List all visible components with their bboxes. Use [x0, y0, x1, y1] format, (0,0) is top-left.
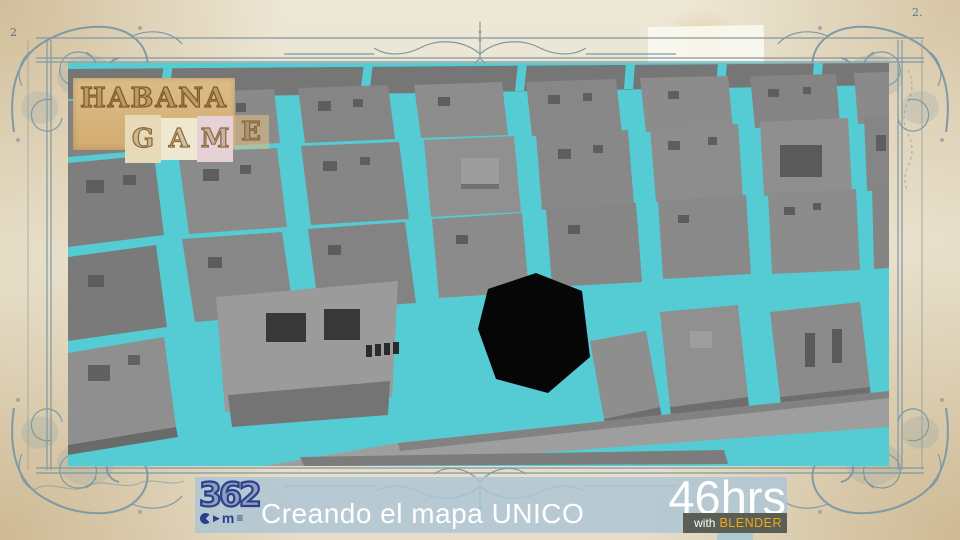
banner-title: Creando el mapa UNICO: [261, 498, 584, 530]
with-label: with: [694, 516, 715, 530]
pacman-icon: [200, 513, 211, 524]
triple-bar-icon: ≡: [236, 512, 242, 524]
blender-label: BLENDER: [719, 516, 782, 530]
banner-tab: [717, 533, 753, 540]
logo-letter-patch: M: [197, 116, 233, 162]
bottom-banner: 362 ▶ m ≡ Creando el mapa UNICO 46hrs wi…: [195, 477, 787, 533]
logo-letter-patch: G: [125, 115, 161, 163]
studio-logo: 362 ▶ m ≡: [199, 477, 261, 533]
plate-number-tl: 2: [10, 26, 17, 39]
studio-logo-digits: 362: [199, 477, 261, 513]
logo-letter-patch: E: [233, 115, 269, 149]
scroll-chain-ornament: [34, 481, 184, 490]
poster: 2 2. HABANA G A M E 362 ▶ m ≡ Creando el…: [0, 0, 960, 540]
habana-game-logo: HABANA G A M E: [73, 78, 235, 150]
with-blender-box: with BLENDER: [683, 513, 787, 533]
studio-logo-letter: m: [222, 511, 234, 525]
plate-number-tr: 2.: [912, 6, 923, 19]
logo-title: HABANA: [73, 85, 235, 112]
play-icon: ▶: [213, 514, 220, 523]
logo-letter-patch: A: [161, 118, 197, 160]
logo-subtitle: G A M E: [125, 115, 269, 163]
